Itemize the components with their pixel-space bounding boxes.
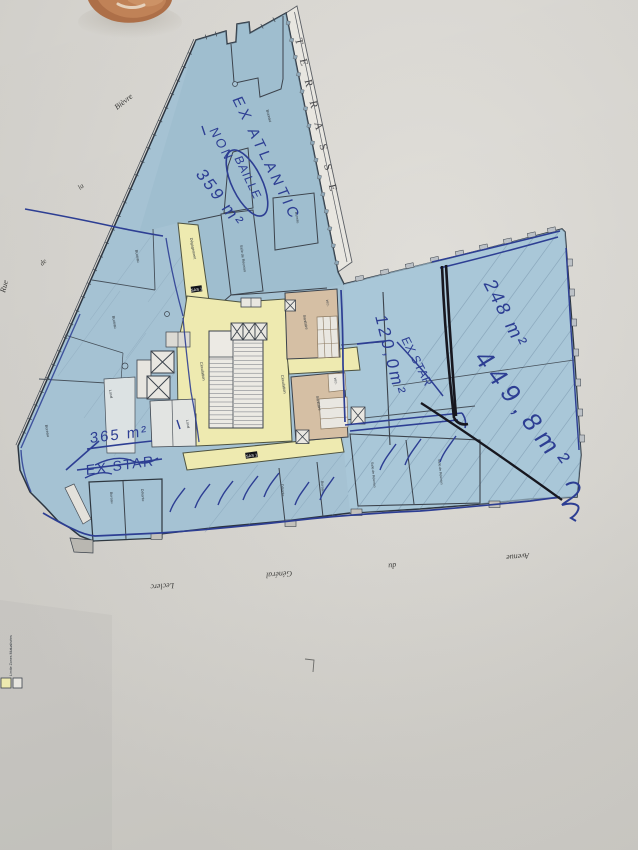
svg-text:Limite Zones Mutualisées: Limite Zones Mutualisées [9,635,13,676]
svg-text:du: du [388,561,397,571]
svg-text:Leclerc: Leclerc [150,581,176,592]
svg-text:Général: Général [265,569,293,580]
